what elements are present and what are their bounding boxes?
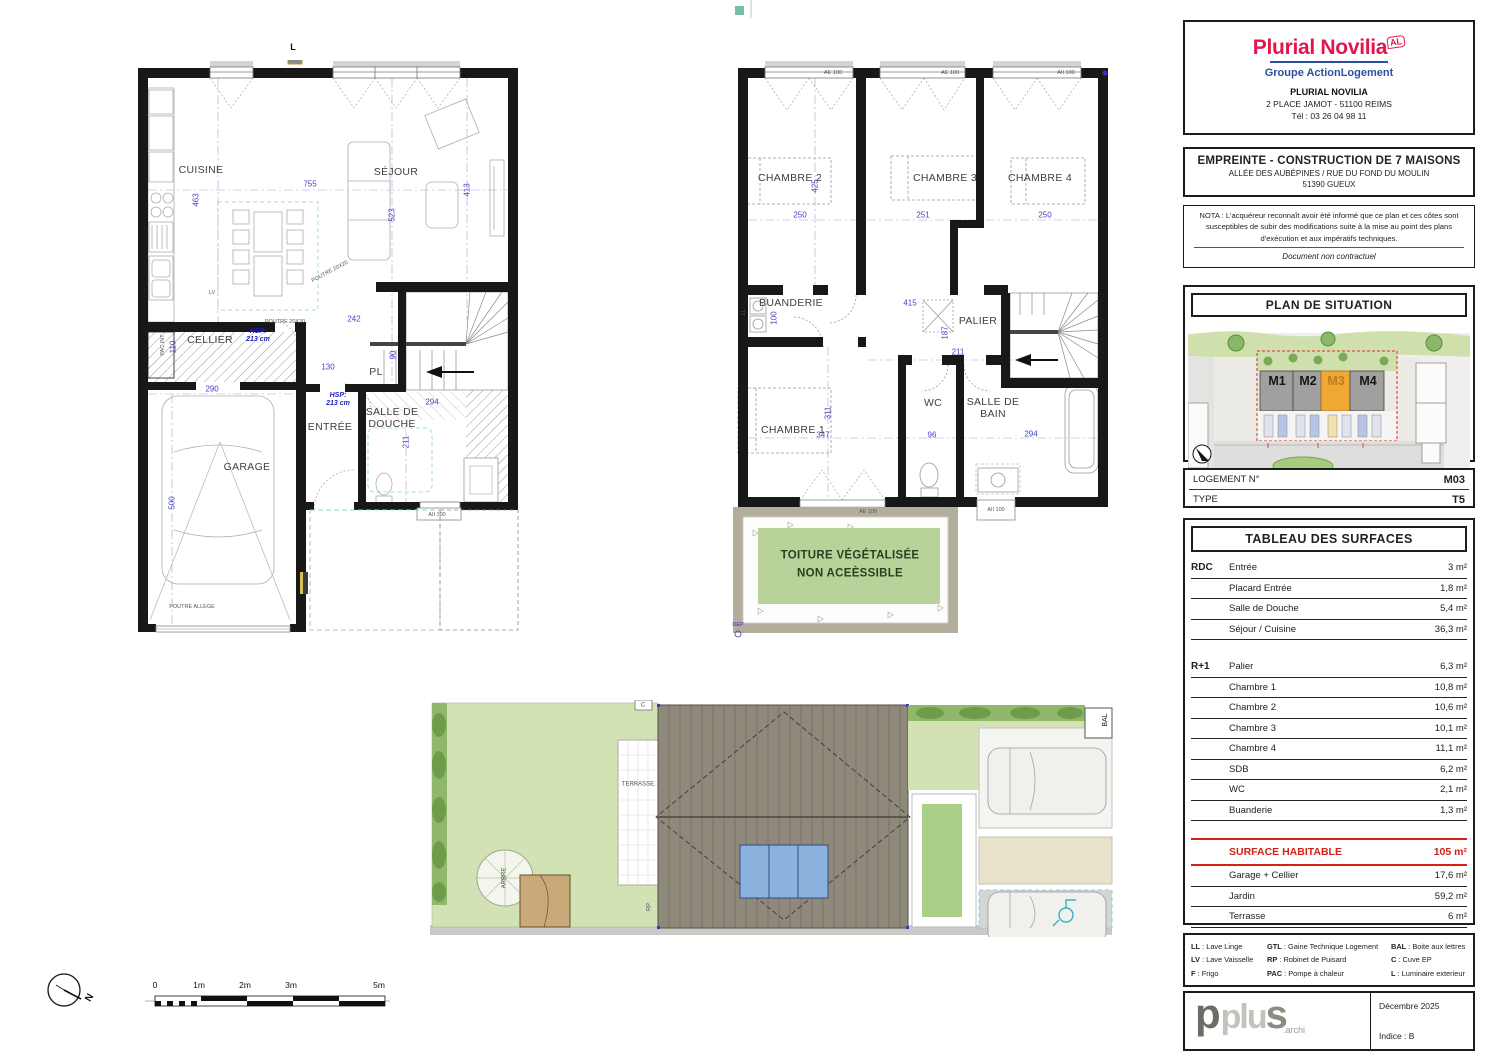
surface-row: RDCEntrée3 m² — [1191, 558, 1467, 579]
terrace-outline — [300, 510, 518, 630]
footer-block: pplus .archi Décembre 2025 Indice : B — [1183, 991, 1475, 1051]
stairs — [1010, 293, 1098, 378]
winlbl-label: AII 100 — [1057, 70, 1074, 76]
tiny-label: DEP — [732, 622, 743, 628]
dim-label: 425 — [810, 179, 819, 192]
surface-row: WC2,1 m² — [1191, 780, 1467, 801]
site-label: TERRASSE — [622, 782, 654, 789]
project-block: EMPREINTE - CONSTRUCTION DE 7 MAISONS AL… — [1183, 147, 1475, 197]
plan-sheet: { "title_block": { "logo": {"brand": "Pl… — [0, 0, 1500, 1060]
surface-row: Terrasse6 m² — [1191, 907, 1467, 928]
dim-label: 96 — [928, 430, 937, 439]
dim-label: 130 — [321, 362, 334, 371]
surface-row: Placard Entrée1,8 m² — [1191, 579, 1467, 600]
site-label: RP — [647, 903, 654, 911]
scale-label: 5m — [373, 980, 385, 990]
tiny-label: PAC INT — [160, 334, 166, 355]
room-label: BUANDERIE — [759, 297, 823, 309]
scale-label: 2m — [239, 980, 251, 990]
winlbl-label: AE 100 — [824, 70, 842, 76]
surface-name: Placard Entrée — [1229, 583, 1440, 594]
type-value: T5 — [1452, 494, 1465, 506]
tiny-label: LV — [209, 290, 215, 296]
dim-label: 755 — [303, 179, 316, 188]
project-address2: 51390 GUEUX — [1185, 180, 1473, 189]
nota-text: NOTA : L'acquéreur reconnaît avoir été i… — [1184, 206, 1474, 245]
legend-item: LV : Lave Vaisselle — [1191, 955, 1267, 964]
surface-row: SDB6,2 m² — [1191, 760, 1467, 781]
room-label: CHAMBRE 1 — [761, 424, 825, 436]
tiny-label: POUTRE ALLEGE — [169, 604, 215, 610]
surface-name: Garage + Cellier — [1229, 870, 1435, 881]
legend-item: L : Luminaire exterieur — [1391, 969, 1467, 978]
note-label: HSP: 213 cm — [326, 392, 350, 408]
site-label: BAL — [1102, 713, 1110, 726]
floor-group-label: RDC — [1191, 562, 1229, 573]
scale-label: 0 — [153, 980, 158, 990]
surface-name: Jardin — [1229, 891, 1435, 902]
dim-label: 110 — [168, 341, 177, 354]
surface-name: Séjour / Cuisine — [1229, 624, 1435, 635]
surface-table-title: TABLEAU DES SURFACES — [1191, 526, 1467, 552]
surface-habitable-label: SURFACE HABITABLE — [1229, 846, 1434, 858]
room-label: SALLE DE DOUCHE — [366, 406, 419, 430]
surface-value: 6,3 m² — [1440, 661, 1467, 672]
dim-label: 250 — [1038, 210, 1051, 219]
type-row: TYPE T5 — [1185, 490, 1473, 509]
dim-label: 211 — [401, 436, 410, 449]
surface-value: 59,2 m² — [1435, 891, 1467, 902]
situation-block: PLAN DE SITUATION — [1183, 285, 1475, 462]
site-label: C — [641, 703, 645, 710]
dim-label: 415 — [903, 298, 916, 307]
legend-item: GTL : Gaine Technique Logement — [1267, 942, 1391, 951]
surface-value: 10,6 m² — [1435, 702, 1467, 713]
project-address1: ALLÉE DES AUBÉPINES / RUE DU FOND DU MOU… — [1185, 169, 1473, 178]
dim-label: 251 — [916, 210, 929, 219]
logement-label: LOGEMENT N° — [1193, 474, 1259, 485]
nota-doc: Document non contractuel — [1184, 250, 1474, 265]
room-label: ENTRÉE — [308, 421, 352, 433]
surface-value: 17,6 m² — [1435, 870, 1467, 881]
surface-value: 10,1 m² — [1435, 723, 1467, 734]
type-label: TYPE — [1193, 494, 1218, 505]
company-phone: Tél : 03 26 04 98 11 — [1185, 111, 1473, 121]
floor-plan-r1 — [728, 60, 1118, 640]
surface-value: 5,4 m² — [1440, 603, 1467, 614]
situation-title: PLAN DE SITUATION — [1191, 293, 1467, 317]
rdc-label-layer: CUISINESÉJOURCELLIERGARAGEENTRÉESALLE DE… — [130, 60, 520, 635]
furniture — [148, 88, 504, 620]
dim-label: 347 — [816, 430, 829, 439]
stairs — [370, 292, 508, 390]
winlbl-label: AE 100 — [859, 509, 877, 515]
surface-row: Garage + Cellier17,6 m² — [1191, 866, 1467, 887]
dim-label: 187 — [940, 326, 949, 339]
toit-label: NON ACEÈSSIBLE — [797, 567, 903, 580]
logement-block: LOGEMENT N° M03 TYPE T5 — [1183, 468, 1475, 508]
dim-label: 290 — [205, 384, 218, 393]
room-label: CELLIER — [187, 334, 233, 346]
winlbl-label: AE 100 — [941, 70, 959, 76]
room-label: CHAMBRE 3 — [913, 172, 977, 184]
surface-value: 1,8 m² — [1440, 583, 1467, 594]
dim-label: 242 — [347, 314, 360, 323]
dimension-guides — [748, 78, 1098, 497]
brand-rule — [1270, 61, 1388, 63]
room-label: SALLE DE BAIN — [967, 396, 1020, 420]
dim-label: 211 — [952, 347, 965, 356]
revision-box: Décembre 2025 Indice : B — [1370, 993, 1473, 1049]
surface-name: Buanderie — [1229, 805, 1440, 816]
hatched-zones — [148, 332, 508, 502]
dim-label: 250 — [793, 210, 806, 219]
legend-item: PAC : Pompe à chaleur — [1267, 969, 1391, 978]
compass: N — [40, 968, 110, 1023]
surface-row: Chambre 110,8 m² — [1191, 678, 1467, 699]
floor-group-label: R+1 — [1191, 661, 1229, 672]
legend-block: LL : Lave Linge LV : Lave Vaisselle F : … — [1183, 933, 1475, 987]
dim-label: 90 — [388, 351, 397, 360]
plabel-label: L — [290, 42, 296, 52]
room-label: PL — [369, 366, 382, 378]
room-label: SÉJOUR — [374, 166, 418, 178]
dim-label: 294 — [425, 397, 438, 406]
tiny-label: AII 100 — [428, 512, 445, 518]
dim-label: 294 — [1024, 429, 1037, 438]
project-title: EMPREINTE - CONSTRUCTION DE 7 MAISONS — [1185, 155, 1473, 167]
windows — [156, 61, 461, 632]
legend-item: BAL : Boite aux lettres — [1391, 942, 1467, 951]
architect-logo: pplus .archi — [1185, 993, 1370, 1049]
logement-row: LOGEMENT N° M03 — [1185, 470, 1473, 489]
surface-row: Chambre 310,1 m² — [1191, 719, 1467, 740]
surface-habitable-value: 105 m² — [1434, 846, 1467, 858]
surface-table-block: TABLEAU DES SURFACES RDCEntrée3 m² Placa… — [1183, 518, 1475, 925]
roof-light-marker — [288, 60, 302, 64]
company-address: 2 PLACE JAMOT - 51100 REIMS — [1185, 99, 1473, 109]
surface-name: Chambre 1 — [1229, 682, 1435, 693]
dim-label: 500 — [167, 496, 176, 509]
surface-value: 10,8 m² — [1435, 682, 1467, 693]
date: Décembre 2025 — [1379, 1001, 1465, 1011]
room-label: CHAMBRE 2 — [758, 172, 822, 184]
surface-value: 1,3 m² — [1440, 805, 1467, 816]
scale-label: 1m — [193, 980, 205, 990]
indice: Indice : B — [1379, 1031, 1465, 1041]
roof — [656, 704, 910, 929]
dimension-guides — [148, 78, 518, 624]
scale-bar: 0 1m 2m 3m 5m — [145, 980, 390, 1012]
site-label: ARBRE — [502, 868, 509, 889]
winlbl-label: AII 100 — [987, 507, 1004, 513]
room-label: GARAGE — [224, 461, 271, 473]
logo-block: Plurial NoviliaAL Groupe ActionLogement … — [1183, 20, 1475, 135]
dim-label: 463 — [191, 193, 200, 206]
surface-name: Palier — [1229, 661, 1440, 672]
room-label: CUISINE — [179, 164, 224, 176]
surface-row: Jardin59,2 m² — [1191, 887, 1467, 908]
right-parcel — [908, 705, 1112, 937]
site-plan — [430, 700, 1120, 937]
surface-row: Chambre 411,1 m² — [1191, 739, 1467, 760]
windows — [765, 61, 1108, 520]
company-name: PLURIAL NOVILIA — [1185, 87, 1473, 97]
surface-row: Séjour / Cuisine36,3 m² — [1191, 620, 1467, 641]
surface-value: 2,1 m² — [1440, 784, 1467, 795]
dim-label: 100 — [769, 311, 778, 324]
sheet-tick — [750, 0, 752, 18]
scale-bar-graphic — [145, 992, 390, 1010]
room-label: CHAMBRE 4 — [1008, 172, 1072, 184]
compass-rose — [40, 968, 110, 1023]
dim-label: 523 — [387, 208, 396, 221]
surface-row: Buanderie1,3 m² — [1191, 801, 1467, 822]
note-label: HSP: 213 cm — [246, 328, 270, 344]
surface-name: Salle de Douche — [1229, 603, 1440, 614]
surface-name: SDB — [1229, 764, 1440, 775]
stair-arrow — [426, 366, 474, 378]
stair-arrow — [1015, 354, 1058, 366]
scale-label: 3m — [285, 980, 297, 990]
walls — [738, 68, 1108, 507]
site-label-layer: TERRASSEARBRERPCBAL — [430, 700, 1120, 937]
al-badge-icon: AL — [1386, 35, 1405, 49]
surface-name: Terrasse — [1229, 911, 1448, 922]
surface-name: Chambre 3 — [1229, 723, 1435, 734]
surface-name: Chambre 2 — [1229, 702, 1435, 713]
surface-row: R+1Palier6,3 m² — [1191, 657, 1467, 678]
surface-value: 11,1 m² — [1435, 743, 1467, 754]
green-roof — [733, 507, 958, 637]
legend-item: C : Cuve EP — [1391, 955, 1467, 964]
surface-value: 6 m² — [1448, 911, 1467, 922]
surface-row: Chambre 210,6 m² — [1191, 698, 1467, 719]
legend-item: RP : Robinet de Puisard — [1267, 955, 1391, 964]
surface-name: WC — [1229, 784, 1440, 795]
tiny-label: LL — [741, 309, 747, 315]
surface-row: Salle de Douche5,4 m² — [1191, 599, 1467, 620]
r1-label-layer: CHAMBRE 2CHAMBRE 3CHAMBRE 4BUANDERIEPALI… — [728, 60, 1118, 640]
brand: Plurial NoviliaAL — [1185, 36, 1473, 60]
surface-value: 6,2 m² — [1440, 764, 1467, 775]
brand-name: Plurial Novilia — [1253, 36, 1387, 59]
surface-value: 3 m² — [1448, 562, 1467, 573]
toit-label: TOITURE VÉGÉTALISÉE — [781, 549, 920, 562]
room-label: PALIER — [959, 315, 997, 327]
garden — [432, 700, 658, 927]
legend: LL : Lave Linge LV : Lave Vaisselle F : … — [1185, 935, 1473, 985]
surface-value: 36,3 m² — [1435, 624, 1467, 635]
brand-group: Groupe ActionLogement — [1185, 67, 1473, 79]
legend-item: F : Frigo — [1191, 969, 1267, 978]
surface-habitable-row: SURFACE HABITABLE105 m² — [1191, 838, 1467, 866]
dim-label: 413 — [462, 183, 471, 196]
surface-name: Entrée — [1229, 562, 1448, 573]
surface-name: Chambre 4 — [1229, 743, 1435, 754]
floor-plan-rdc — [130, 60, 520, 635]
tiny-label: POUTRE 20X20 — [265, 319, 305, 325]
sheet-marker — [735, 6, 744, 15]
dim-label: 311 — [823, 407, 832, 420]
nota-block: NOTA : L'acquéreur reconnaît avoir été i… — [1183, 205, 1475, 268]
room-label: WC — [924, 397, 942, 409]
furniture — [738, 156, 1098, 497]
situation-map — [1188, 323, 1470, 468]
tiny-label: POUTRE 20X20 — [311, 260, 350, 285]
walls — [138, 68, 518, 632]
legend-item: LL : Lave Linge — [1191, 942, 1267, 951]
nota-divider — [1194, 247, 1464, 248]
logement-value: M03 — [1444, 474, 1465, 486]
